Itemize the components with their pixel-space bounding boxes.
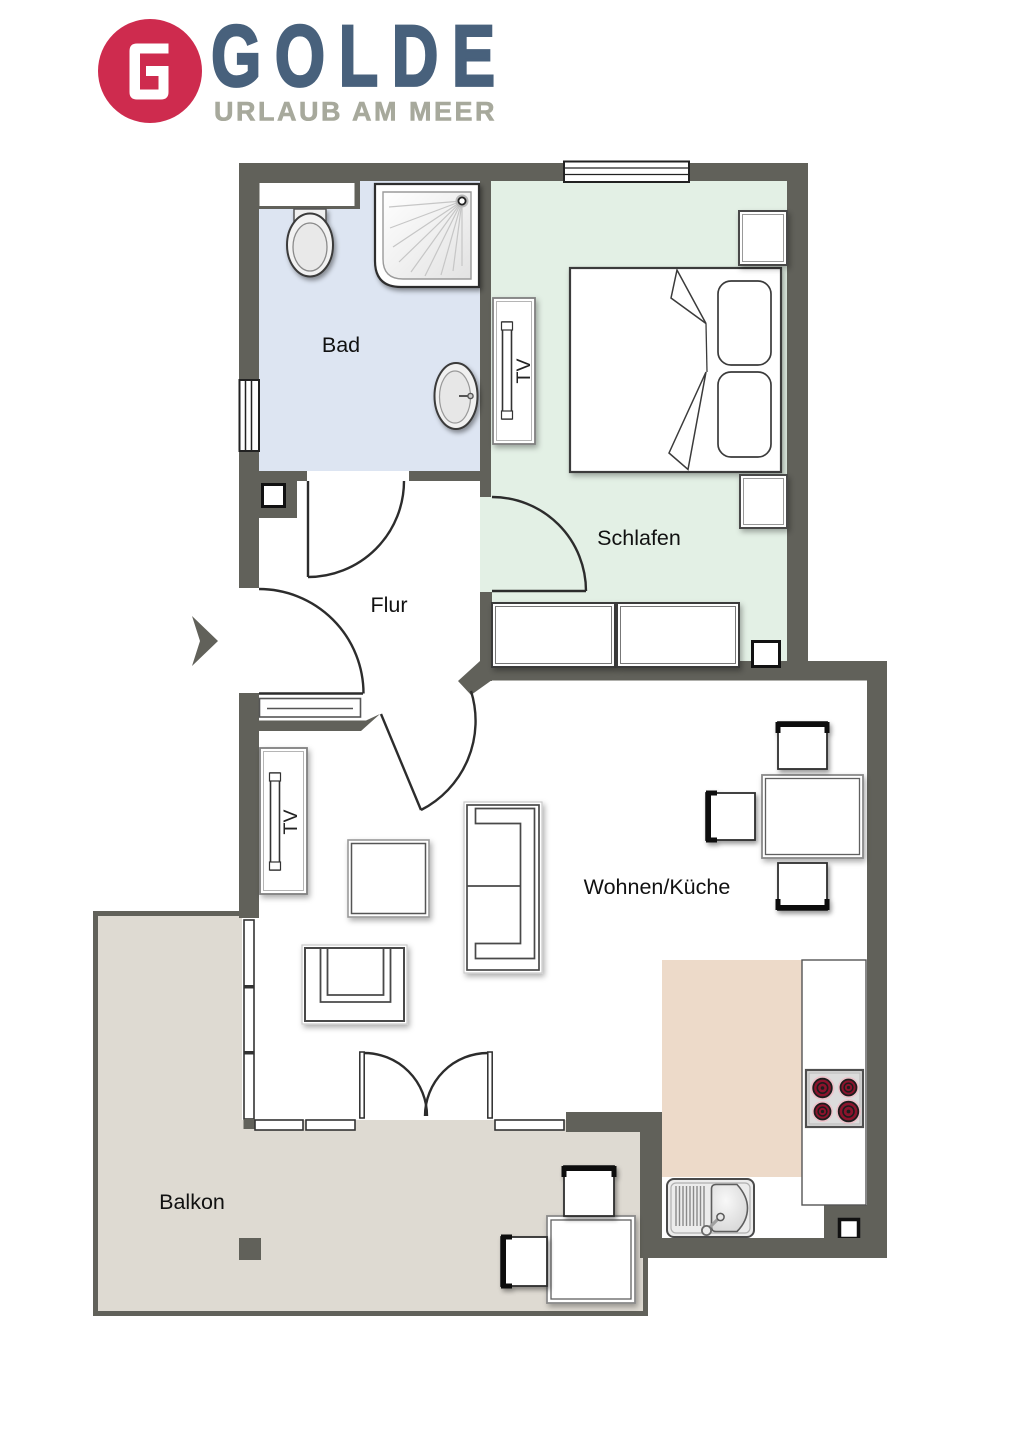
svg-text:Wohnen/Küche: Wohnen/Küche: [584, 875, 731, 899]
svg-text:Balkon: Balkon: [159, 1190, 225, 1214]
svg-text:TV: TV: [513, 359, 535, 384]
svg-text:Bad: Bad: [322, 333, 360, 357]
svg-text:Flur: Flur: [370, 593, 407, 617]
svg-text:URLAUB AM MEER: URLAUB AM MEER: [214, 97, 497, 127]
svg-text:Schlafen: Schlafen: [597, 526, 681, 550]
svg-text:GOLDE: GOLDE: [211, 9, 509, 105]
svg-text:TV: TV: [280, 810, 302, 835]
